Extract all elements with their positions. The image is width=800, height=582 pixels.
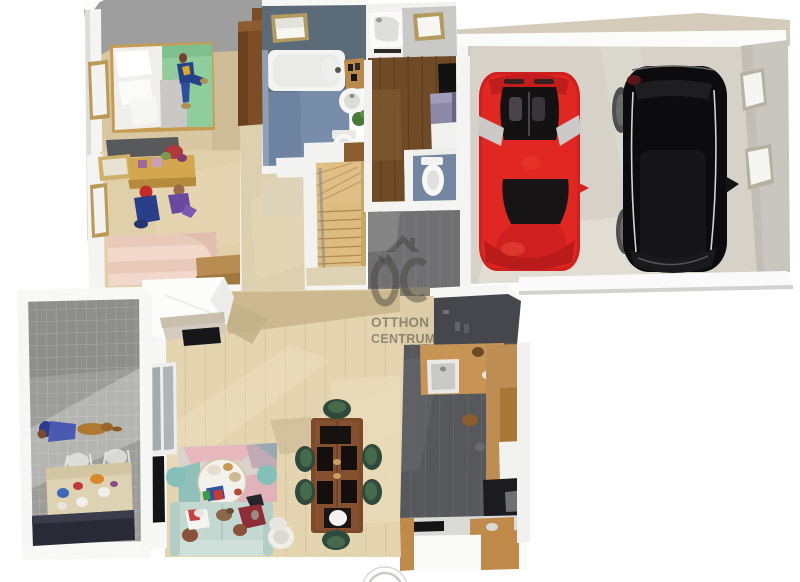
svg-text:CENTRUM: CENTRUM [371,332,436,346]
svg-text:OTTHON: OTTHON [371,315,429,330]
